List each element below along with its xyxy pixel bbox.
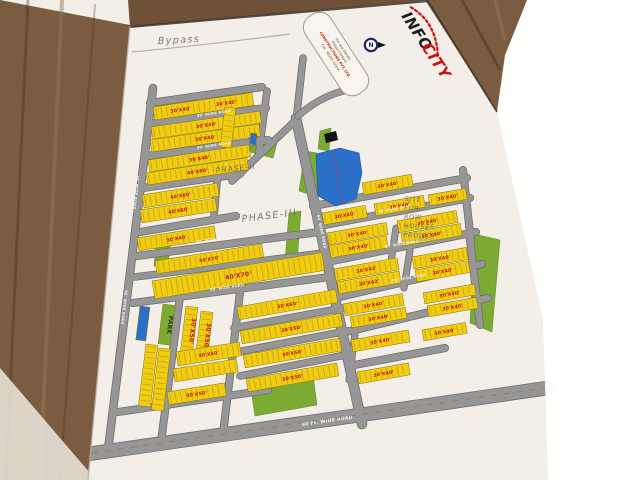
- site-note-line4: HOUSES: [404, 223, 435, 231]
- plot: [250, 133, 257, 145]
- site-note-line2: FOR: [404, 205, 420, 213]
- plot-rect: [250, 133, 257, 145]
- photo-of-layout-map: 30'X40'30'X40'30'X40'30'X40'30'X40'40'X6…: [0, 0, 640, 480]
- compass-n: N: [368, 42, 373, 49]
- site-note-line3: ROW: [404, 214, 422, 222]
- layout-map-canvas: 30'X40'30'X40'30'X40'30'X40'30'X40'40'X6…: [0, 0, 640, 480]
- pond: [316, 148, 362, 206]
- site-note-line1: SITE: [405, 196, 422, 204]
